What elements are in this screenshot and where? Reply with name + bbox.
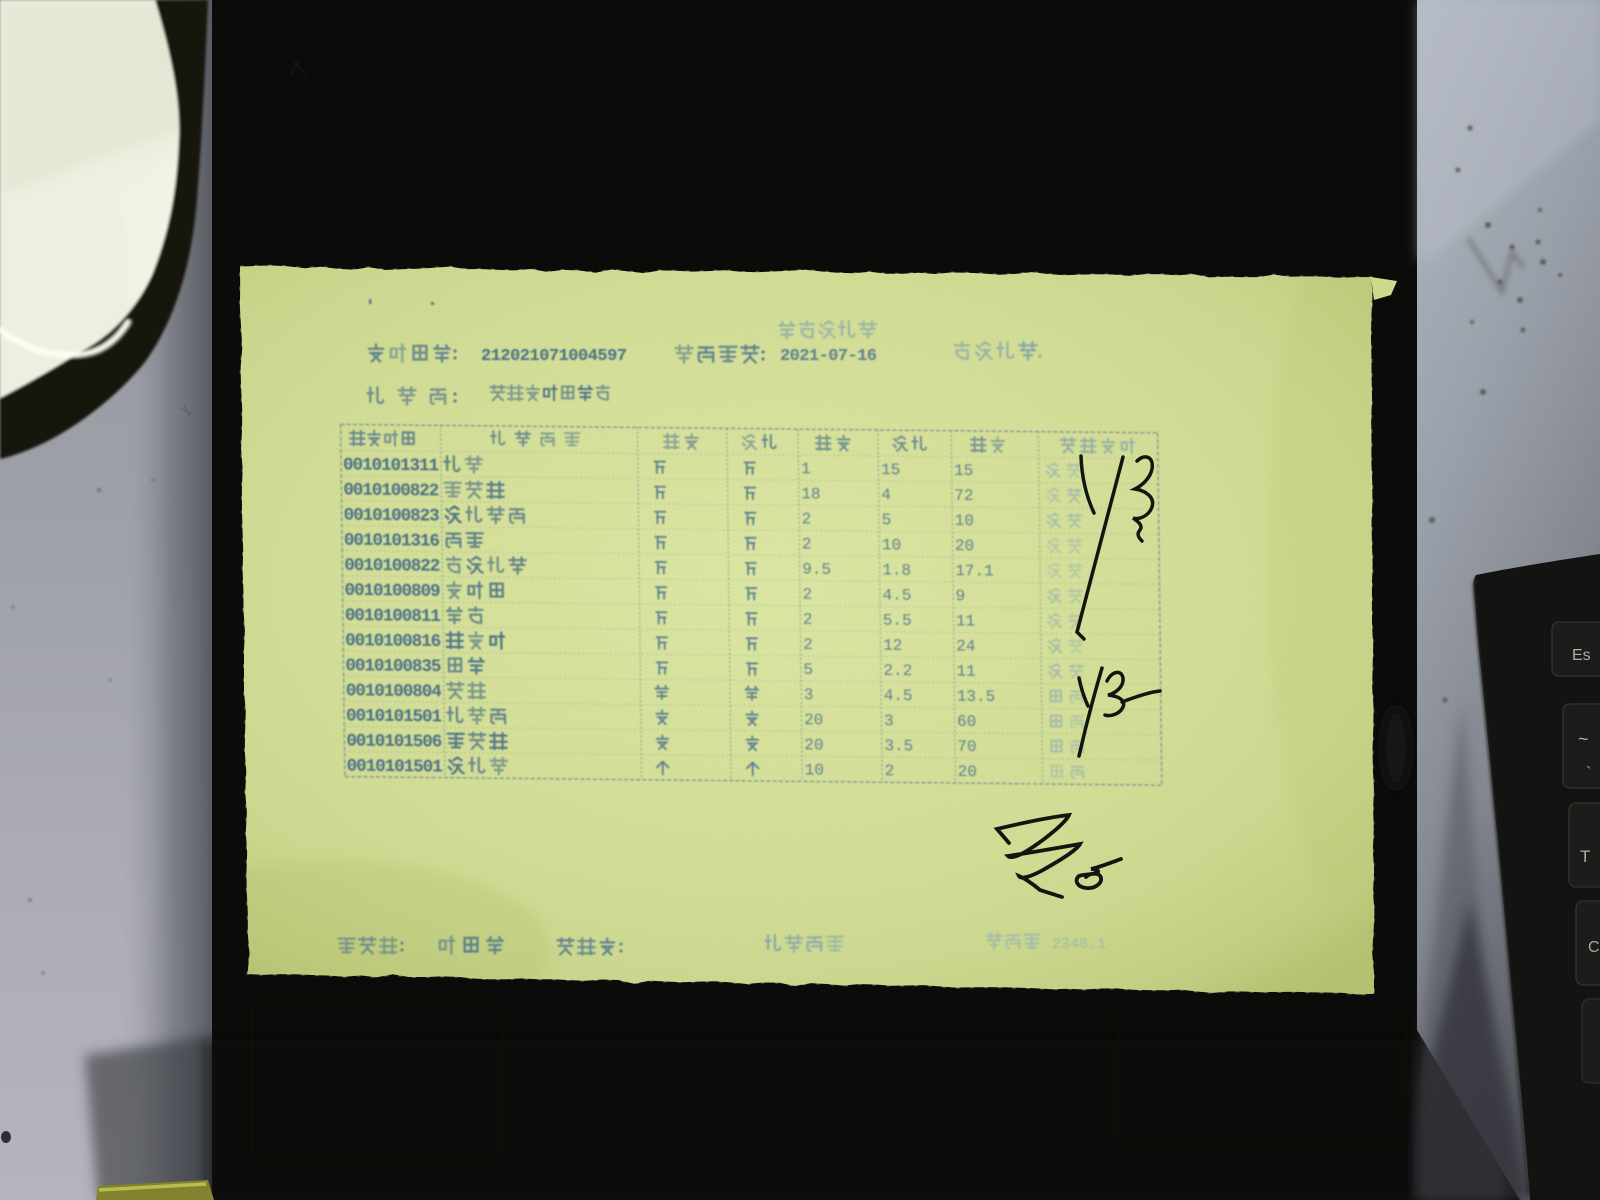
svg-text:0010100809: 0010100809 [344, 581, 440, 602]
svg-text:17.1: 17.1 [955, 562, 994, 580]
svg-text:Es: Es [1572, 647, 1591, 664]
svg-text:0010100835: 0010100835 [345, 656, 441, 677]
svg-text:T: T [1580, 847, 1590, 866]
svg-text:10: 10 [955, 512, 974, 530]
svg-text:0010101501: 0010101501 [346, 706, 442, 727]
svg-text:0010100822: 0010100822 [343, 480, 439, 501]
svg-text:20: 20 [804, 736, 823, 754]
svg-text:0010100804: 0010100804 [346, 681, 442, 702]
svg-text:10: 10 [805, 761, 824, 779]
svg-text:5: 5 [882, 511, 892, 529]
svg-text:2: 2 [802, 586, 812, 604]
svg-text:5: 5 [803, 661, 813, 679]
svg-text:70: 70 [957, 738, 976, 756]
svg-text:10: 10 [882, 536, 901, 554]
svg-text:15: 15 [954, 462, 973, 480]
svg-text:0010101506: 0010101506 [346, 731, 442, 752]
svg-text:11: 11 [956, 663, 975, 681]
svg-text:2021-07-16: 2021-07-16 [780, 347, 877, 366]
svg-text:1: 1 [801, 460, 811, 478]
svg-text:4: 4 [881, 486, 891, 504]
svg-text:2.2: 2.2 [883, 662, 912, 680]
svg-text:3.5: 3.5 [884, 737, 913, 755]
svg-text:3: 3 [804, 686, 814, 704]
svg-text:3: 3 [884, 712, 894, 730]
svg-text:0010100822: 0010100822 [344, 556, 440, 577]
svg-text:0010100816: 0010100816 [345, 631, 441, 652]
svg-text:212021071004597: 212021071004597 [481, 347, 627, 366]
svg-text:15: 15 [881, 461, 900, 479]
svg-text:0010100811: 0010100811 [345, 606, 441, 627]
svg-text:72: 72 [954, 487, 973, 505]
svg-text:2: 2 [802, 535, 812, 553]
svg-text:9.5: 9.5 [802, 561, 831, 579]
svg-text:0010100823: 0010100823 [344, 506, 440, 527]
svg-text:2: 2 [803, 611, 813, 629]
svg-text:18: 18 [801, 485, 820, 503]
svg-text:`: ` [1586, 765, 1591, 782]
svg-text:11: 11 [956, 612, 975, 630]
svg-text:2: 2 [803, 636, 813, 654]
svg-text:20: 20 [804, 711, 823, 729]
svg-text:1.8: 1.8 [882, 561, 911, 579]
svg-text:2348.1: 2348.1 [1052, 936, 1106, 953]
svg-text:2: 2 [802, 510, 812, 528]
svg-text:~: ~ [1578, 729, 1589, 749]
svg-text:4.5: 4.5 [884, 687, 913, 705]
svg-text:C: C [1588, 939, 1600, 956]
svg-text:20: 20 [955, 537, 974, 555]
svg-text:0010101311: 0010101311 [343, 455, 439, 476]
svg-text:13.5: 13.5 [957, 688, 996, 706]
svg-text:60: 60 [957, 713, 976, 731]
svg-text:4.5: 4.5 [882, 586, 911, 604]
svg-text:9: 9 [955, 587, 965, 605]
svg-text:0010101501: 0010101501 [347, 757, 443, 778]
svg-text:12: 12 [883, 637, 902, 655]
svg-text:0010101316: 0010101316 [344, 531, 440, 552]
svg-text:5.5: 5.5 [883, 612, 912, 630]
svg-text:20: 20 [958, 763, 977, 781]
svg-text:2: 2 [885, 762, 895, 780]
svg-text:24: 24 [956, 637, 975, 655]
